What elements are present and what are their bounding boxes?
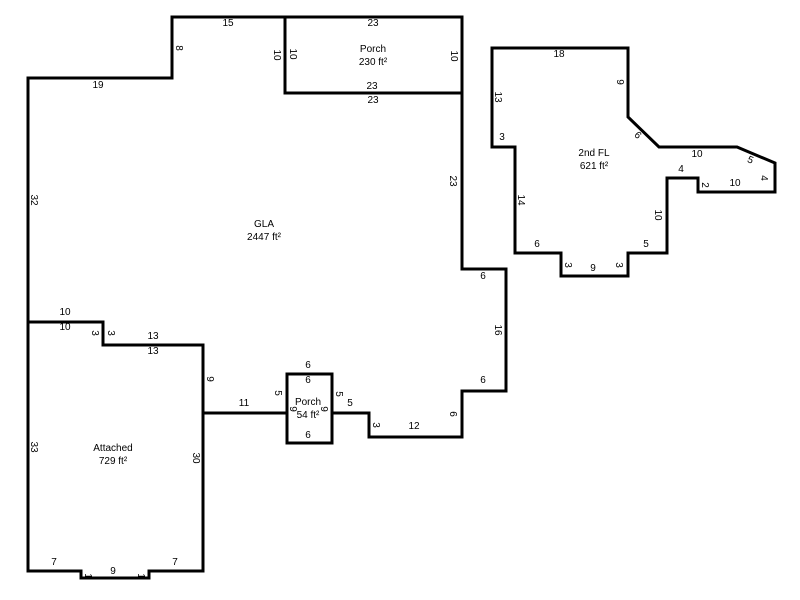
dim-label-attached-33: 33: [28, 441, 38, 452]
dim-label-gla-23: 23: [367, 96, 378, 106]
dim-label-porch-small-6: 6: [305, 376, 311, 386]
sketch-svg: [0, 0, 800, 600]
dim-label-second-fl-10: 10: [729, 179, 740, 189]
dim-label-gla-6: 6: [480, 376, 486, 386]
dim-label-porch-top-23: 23: [367, 19, 378, 29]
area-title-gla: GLA2447 ft²: [247, 218, 281, 244]
dim-label-gla-16: 16: [492, 324, 502, 335]
area-name-gla: GLA: [247, 218, 281, 231]
area-name-porch-top: Porch: [359, 43, 387, 56]
area-name-attached: Attached: [93, 442, 132, 455]
dim-label-second-fl-10: 10: [691, 150, 702, 160]
area-sqft-porch-top: 230 ft²: [359, 56, 387, 69]
dim-label-gla-3: 3: [370, 422, 380, 428]
area-name-second-fl: 2nd FL: [578, 147, 609, 160]
dim-label-second-fl-18: 18: [553, 50, 564, 60]
dim-label-gla-5: 5: [333, 391, 343, 397]
area-sqft-gla: 2447 ft²: [247, 231, 281, 244]
dim-label-attached-10: 10: [59, 323, 70, 333]
dim-label-second-fl-3: 3: [499, 133, 505, 143]
dim-label-porch-top-23: 23: [366, 82, 377, 92]
dim-label-second-fl-9: 9: [614, 79, 624, 85]
dim-label-porch-top-10: 10: [287, 48, 297, 59]
dim-label-gla-3: 3: [105, 330, 115, 336]
dim-label-porch-small-9: 9: [318, 406, 328, 412]
dim-label-attached-9: 9: [110, 567, 116, 577]
floorplan-sketch-canvas: GLA2447 ft²19815102323616661235565119133…: [0, 0, 800, 600]
dim-label-attached-1: 1: [135, 573, 145, 579]
dim-label-gla-5: 5: [347, 399, 353, 409]
dim-label-second-fl-3: 3: [562, 262, 572, 268]
dim-label-attached-30: 30: [190, 452, 200, 463]
dim-label-second-fl-3: 3: [613, 262, 623, 268]
dim-label-gla-9: 9: [204, 376, 214, 382]
dim-label-attached-1: 1: [82, 573, 92, 579]
dim-label-porch-top-10: 10: [448, 50, 458, 61]
area-title-attached: Attached729 ft²: [93, 442, 132, 468]
dim-label-gla-6: 6: [480, 272, 486, 282]
dim-label-gla-10: 10: [59, 308, 70, 318]
area-sqft-second-fl: 621 ft²: [578, 160, 609, 173]
dim-label-second-fl-4: 4: [758, 175, 768, 181]
dim-label-gla-23: 23: [447, 175, 457, 186]
dim-label-gla-6: 6: [305, 361, 311, 371]
dim-label-second-fl-2: 2: [699, 182, 709, 188]
dim-label-porch-small-9: 9: [287, 406, 297, 412]
dim-label-second-fl-13: 13: [492, 91, 502, 102]
dim-label-attached-7: 7: [51, 558, 57, 568]
area-title-porch-top: Porch230 ft²: [359, 43, 387, 69]
dim-label-gla-13: 13: [147, 332, 158, 342]
area-title-second-fl: 2nd FL621 ft²: [578, 147, 609, 173]
dim-label-gla-5: 5: [272, 390, 282, 396]
area-sqft-attached: 729 ft²: [93, 455, 132, 468]
dim-label-gla-12: 12: [408, 422, 419, 432]
dim-label-attached-7: 7: [172, 558, 178, 568]
dim-label-porch-small-6: 6: [305, 431, 311, 441]
dim-label-gla-11: 11: [239, 399, 249, 409]
dim-label-second-fl-5: 5: [643, 240, 649, 250]
dim-label-gla-8: 8: [173, 45, 183, 51]
dim-label-gla-19: 19: [92, 81, 103, 91]
dim-label-second-fl-9: 9: [590, 264, 596, 274]
dim-label-gla-32: 32: [28, 194, 38, 205]
dim-label-gla-10: 10: [271, 49, 281, 60]
dim-label-second-fl-4: 4: [678, 165, 684, 175]
dim-label-gla-15: 15: [222, 19, 233, 29]
dim-label-gla-6: 6: [447, 411, 457, 417]
dim-label-second-fl-10: 10: [652, 209, 662, 220]
dim-label-attached-3: 3: [89, 330, 99, 336]
dim-label-second-fl-6: 6: [534, 240, 540, 250]
dim-label-second-fl-14: 14: [515, 194, 525, 205]
dim-label-attached-13: 13: [147, 347, 158, 357]
